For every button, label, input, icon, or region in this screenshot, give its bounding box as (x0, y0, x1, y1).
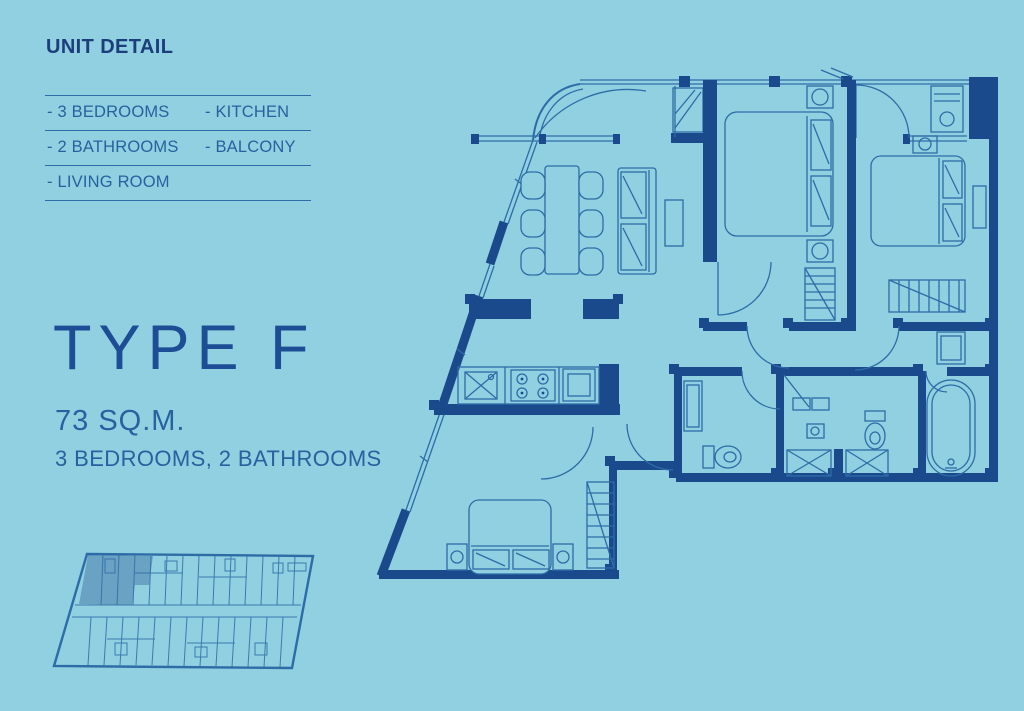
feature-item: - BALCONY (205, 138, 311, 157)
dining-chair (521, 248, 545, 275)
cabinet (973, 186, 986, 228)
toilet-icon (703, 446, 741, 468)
bed (469, 500, 551, 574)
wardrobe (889, 280, 965, 312)
room-bedroom-2 (871, 136, 986, 312)
dining-chair (521, 172, 545, 199)
fridge-icon (563, 369, 595, 401)
unit-location-highlight (79, 555, 153, 605)
feature-item (205, 173, 311, 192)
type-title: TYPE F (53, 312, 316, 384)
unit-detail-heading: UNIT DETAIL (46, 36, 173, 59)
stove-icon (511, 370, 555, 401)
room-bedroom-3 (447, 482, 614, 574)
feature-row: - 3 BEDROOMS - KITCHEN (45, 95, 311, 130)
room-bedroom-1 (725, 86, 835, 320)
feature-item: - 3 BEDROOMS (47, 103, 205, 122)
dining-chair (579, 248, 603, 275)
feature-item: - 2 BATHROOMS (47, 138, 205, 157)
coffee-table (665, 200, 683, 246)
building-overview-plan (45, 543, 320, 673)
toilet-icon (865, 411, 885, 449)
dining-table (521, 166, 603, 275)
balcony-ac-unit (931, 86, 963, 132)
sink-icon (465, 372, 497, 399)
balcony-left (471, 86, 705, 144)
bed (725, 112, 833, 236)
bedrooms-bathrooms-text: 3 BEDROOMS, 2 BATHROOMS (55, 446, 382, 472)
room-living-dining (521, 166, 683, 275)
features-table: - 3 BEDROOMS - KITCHEN - 2 BATHROOMS - B… (45, 95, 311, 201)
room-bathroom-1 (684, 381, 741, 468)
unit-detail-page: UNIT DETAIL - 3 BEDROOMS - KITCHEN - 2 B… (0, 0, 1024, 711)
area-text: 73 SQ.M. (55, 405, 186, 438)
wardrobe (805, 268, 835, 320)
room-bathroom-master (927, 332, 975, 476)
feature-row: - 2 BATHROOMS - BALCONY (45, 130, 311, 165)
bed (871, 156, 965, 246)
feature-item: - LIVING ROOM (47, 173, 205, 192)
feature-row: - LIVING ROOM (45, 165, 311, 200)
shower (846, 450, 888, 476)
shower (787, 450, 831, 476)
door-arc (856, 85, 909, 138)
main-floor-plan (373, 64, 1023, 589)
cabinet (812, 398, 829, 410)
balcony-right (856, 85, 967, 144)
dining-chair (579, 210, 603, 237)
sink-icon (807, 424, 824, 438)
feature-item: - KITCHEN (205, 103, 311, 122)
balcony-ac-unit (673, 88, 703, 132)
dining-chair (521, 210, 545, 237)
nightstand (913, 136, 937, 153)
sofa (618, 168, 656, 274)
cabinet (937, 332, 965, 364)
dining-chair (579, 172, 603, 199)
vanity (684, 381, 702, 431)
room-kitchen (458, 367, 599, 404)
bathtub-icon (927, 380, 975, 476)
